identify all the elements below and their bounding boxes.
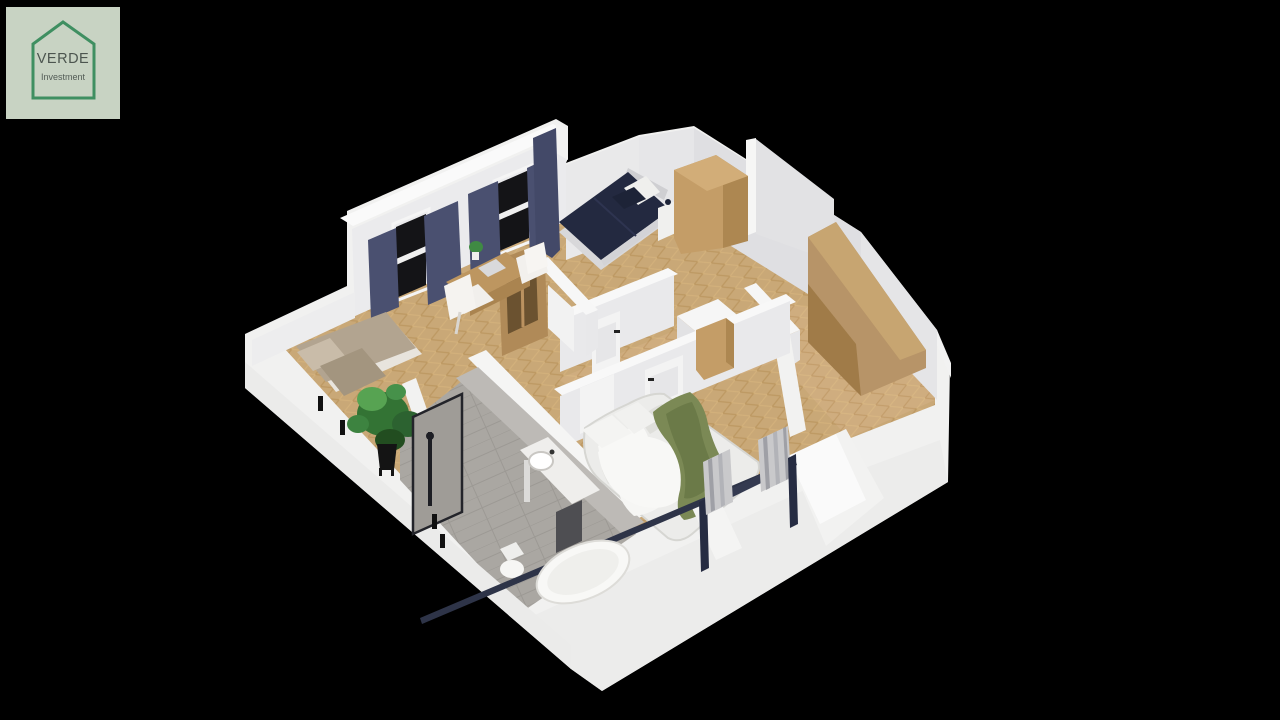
svg-text:Investment: Investment [41,72,86,82]
svg-text:VERDE: VERDE [37,51,89,67]
